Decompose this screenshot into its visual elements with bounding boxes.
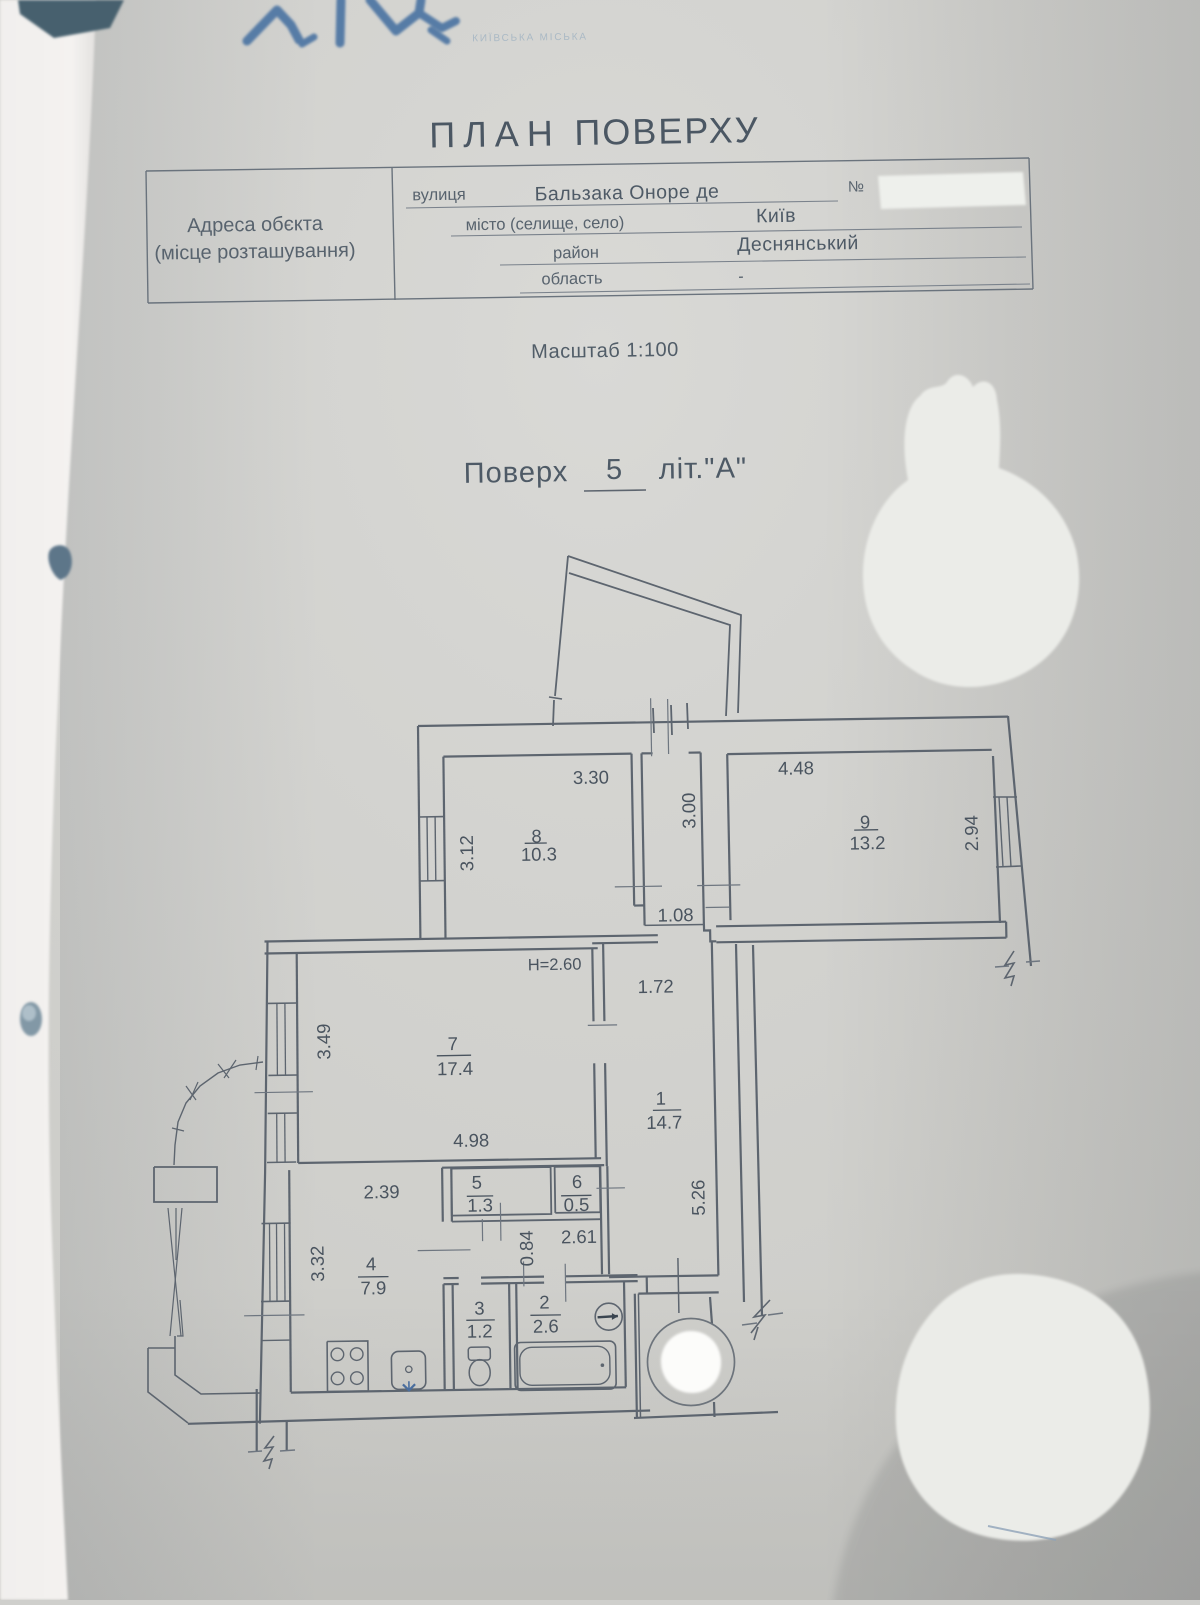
svg-text:0.5: 0.5 bbox=[563, 1194, 589, 1215]
svg-text:Адреса обєкта: Адреса обєкта bbox=[187, 213, 324, 237]
svg-text:3: 3 bbox=[474, 1298, 485, 1319]
svg-text:№: № bbox=[848, 178, 864, 195]
svg-text:місто (селище, село): місто (селище, село) bbox=[466, 214, 625, 235]
svg-text:3.32: 3.32 bbox=[306, 1246, 328, 1282]
svg-text:4.48: 4.48 bbox=[778, 757, 814, 779]
svg-text:1.3: 1.3 bbox=[467, 1194, 493, 1215]
svg-text:3.00: 3.00 bbox=[678, 793, 700, 829]
svg-text:2.6: 2.6 bbox=[533, 1315, 559, 1336]
svg-text:H=2.60: H=2.60 bbox=[528, 955, 582, 974]
svg-text:3.30: 3.30 bbox=[573, 766, 609, 788]
svg-text:3.49: 3.49 bbox=[313, 1023, 335, 1059]
svg-text:вулиця: вулиця bbox=[412, 186, 466, 205]
svg-text:1.72: 1.72 bbox=[638, 976, 674, 998]
svg-text:2.61: 2.61 bbox=[561, 1226, 597, 1248]
svg-text:ПОВЕРХУ: ПОВЕРХУ bbox=[574, 109, 760, 153]
svg-text:1.08: 1.08 bbox=[657, 904, 693, 926]
svg-text:район: район bbox=[553, 244, 599, 263]
svg-text:0.84: 0.84 bbox=[516, 1230, 538, 1266]
svg-text:6: 6 bbox=[572, 1171, 583, 1192]
svg-text:14.7: 14.7 bbox=[646, 1111, 682, 1133]
svg-text:3.12: 3.12 bbox=[456, 835, 478, 871]
svg-text:7: 7 bbox=[447, 1033, 458, 1054]
svg-text:2: 2 bbox=[539, 1292, 550, 1313]
svg-text:1.2: 1.2 bbox=[467, 1320, 493, 1341]
svg-text:17.4: 17.4 bbox=[437, 1058, 473, 1080]
svg-text:Київ: Київ bbox=[756, 205, 796, 228]
svg-text:2.94: 2.94 bbox=[960, 815, 982, 851]
svg-text:4: 4 bbox=[366, 1253, 377, 1274]
svg-text:13.2: 13.2 bbox=[849, 832, 885, 854]
svg-text:КИЇВСЬКА МІСЬКА: КИЇВСЬКА МІСЬКА bbox=[472, 31, 588, 45]
svg-text:7.9: 7.9 bbox=[360, 1277, 386, 1298]
svg-text:5: 5 bbox=[606, 454, 623, 486]
svg-text:Поверх: Поверх bbox=[464, 456, 569, 490]
svg-text:1: 1 bbox=[655, 1088, 666, 1109]
svg-text:10.3: 10.3 bbox=[521, 843, 557, 865]
svg-text:2.39: 2.39 bbox=[363, 1181, 399, 1203]
svg-text:5: 5 bbox=[471, 1172, 482, 1193]
svg-text:-: - bbox=[738, 268, 744, 285]
svg-text:область: область bbox=[541, 270, 602, 289]
svg-text:5.26: 5.26 bbox=[687, 1180, 709, 1216]
svg-text:(місце розташування): (місце розташування) bbox=[154, 239, 355, 264]
svg-text:Бальзака Оноре де: Бальзака Оноре де bbox=[534, 181, 719, 206]
svg-text:літ."А": літ."А" bbox=[659, 452, 748, 485]
svg-text:Масштаб 1:100: Масштаб 1:100 bbox=[531, 339, 679, 363]
svg-text:ПЛАН: ПЛАН bbox=[429, 112, 561, 155]
svg-text:Деснянський: Деснянський bbox=[737, 232, 859, 256]
svg-text:4.98: 4.98 bbox=[453, 1129, 489, 1151]
